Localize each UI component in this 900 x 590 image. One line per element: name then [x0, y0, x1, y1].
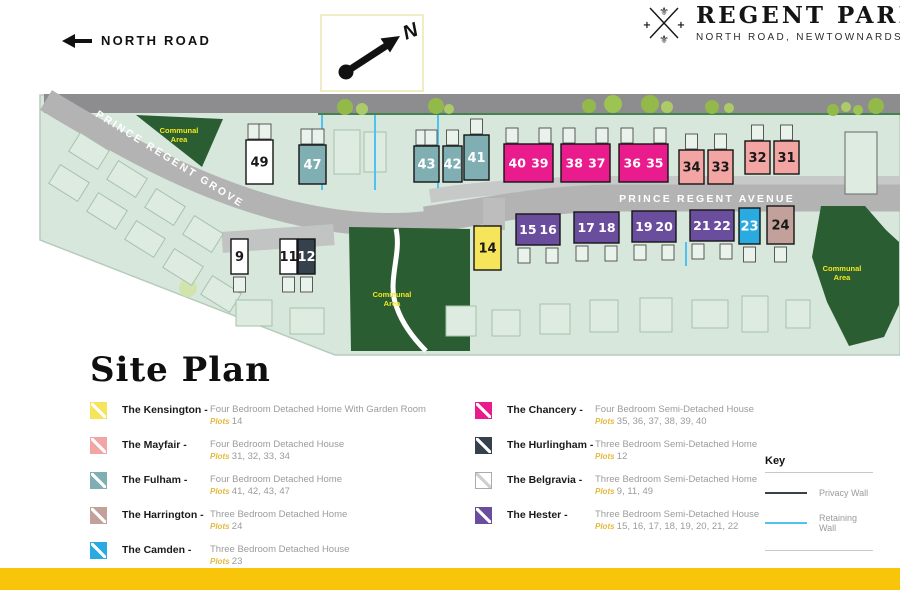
garage-outline — [621, 128, 633, 143]
legend-item-chancery: The Chancery -Four Bedroom Semi-Detached… — [475, 402, 853, 428]
key-item-label: Privacy Wall — [819, 488, 868, 498]
house-type-name: The Camden - — [122, 542, 210, 556]
plot-number: 35 — [646, 156, 663, 171]
svg-text:Area: Area — [384, 299, 402, 308]
svg-text:Area: Area — [834, 273, 852, 282]
legend-item-camden: The Camden -Three Bedroom Detached House… — [90, 542, 468, 568]
legend-item-kensington: The Kensington -Four Bedroom Detached Ho… — [90, 402, 468, 428]
garage-outline — [234, 277, 246, 292]
plots-label: Plots — [595, 417, 617, 426]
street-name-avenue: PRINCE REGENT AVENUE — [619, 193, 795, 205]
garage-outline — [539, 128, 551, 143]
plot-number: 22 — [713, 218, 730, 233]
garage-outline — [775, 247, 787, 262]
garage-outline — [301, 129, 313, 144]
garage-outline — [692, 244, 704, 259]
legend-item-fulham: The Fulham -Four Bedroom Detached HomePl… — [90, 472, 468, 498]
plot-number: 23 — [740, 220, 758, 235]
plots-label: Plots — [210, 557, 232, 566]
legend-item-harrington: The Harrington -Three Bedroom Detached H… — [90, 507, 468, 533]
plot-number: 32 — [748, 151, 766, 166]
house-type-plots: Plots 14 — [210, 416, 426, 428]
plots-label: Plots — [595, 522, 617, 531]
plots-numbers: 41, 42, 43, 47 — [232, 486, 290, 497]
page: NORTH ROAD N ⚜ ⚜ + + REGENT PARK NORTH R… — [0, 0, 900, 590]
house-type-name: The Hester - — [507, 507, 595, 521]
house-type-name: The Harrington - — [122, 507, 210, 521]
plot-number: 38 — [566, 156, 583, 171]
plots-label: Plots — [595, 487, 617, 496]
plot-number: 20 — [655, 219, 673, 234]
plots-label: Plots — [210, 522, 232, 531]
house-type-swatch — [90, 472, 107, 489]
house-type-plots: Plots 31, 32, 33, 34 — [210, 451, 344, 463]
plot-number: 12 — [297, 250, 315, 265]
garage-outline — [312, 129, 324, 144]
house-type-details: Four Bedroom Detached Home With Garden R… — [210, 402, 426, 428]
garage-outline — [576, 246, 588, 261]
house-type-details: Three Bedroom Detached HousePlots 23 — [210, 542, 349, 568]
house-type-details: Three Bedroom Semi-Detached HousePlots 1… — [595, 507, 759, 533]
plot-number: 40 — [509, 156, 527, 171]
house-type-name: The Hurlingham - — [507, 437, 595, 451]
house-type-desc: Three Bedroom Detached Home — [210, 509, 347, 521]
plot-number: 33 — [711, 161, 729, 176]
plot-number: 17 — [577, 220, 594, 235]
house-type-plots: Plots 41, 42, 43, 47 — [210, 486, 342, 498]
legend-item-mayfair: The Mayfair -Four Bedroom Detached House… — [90, 437, 468, 463]
plot-number: 21 — [693, 218, 710, 233]
driveway-plot14 — [483, 198, 505, 230]
house-type-desc: Three Bedroom Semi-Detached Home — [595, 439, 757, 451]
svg-text:Communal: Communal — [373, 290, 412, 299]
house-type-desc: Three Bedroom Semi-Detached Home — [595, 474, 757, 486]
house-type-desc: Four Bedroom Detached Home — [210, 474, 342, 486]
plots-label: Plots — [210, 452, 232, 461]
garage-outline — [259, 124, 271, 139]
house-type-plots: Plots 15, 16, 17, 18, 19, 20, 21, 22 — [595, 521, 759, 533]
plots-label: Plots — [595, 452, 617, 461]
garage-outline — [686, 134, 698, 149]
house-type-swatch — [90, 437, 107, 454]
plot-number: 11 — [279, 250, 297, 265]
plots-numbers: 31, 32, 33, 34 — [232, 451, 290, 462]
house-type-swatch — [475, 437, 492, 454]
house-type-plots: Plots 12 — [595, 451, 757, 463]
plots-numbers: 35, 36, 37, 38, 39, 40 — [617, 416, 707, 427]
house-type-swatch — [90, 542, 107, 559]
plots-numbers: 23 — [232, 556, 243, 567]
house-type-swatch — [475, 472, 492, 489]
house-type-swatch — [475, 402, 492, 419]
house-type-desc: Four Bedroom Detached House — [210, 439, 344, 451]
garage-outline — [301, 277, 313, 292]
garage-outline — [720, 244, 732, 259]
key-item-label: Retaining Wall — [819, 513, 873, 533]
garage-outline — [248, 124, 260, 139]
house-type-name: The Fulham - — [122, 472, 210, 486]
garage-outline — [744, 247, 756, 262]
key-item-retaining-wall: Retaining Wall — [765, 513, 873, 533]
plot-number: 16 — [539, 222, 557, 237]
plot-number: 47 — [303, 158, 321, 173]
svg-text:Area: Area — [171, 135, 189, 144]
plot-number: 15 — [519, 222, 536, 237]
key-line-swatch — [765, 522, 807, 524]
house-type-desc: Three Bedroom Detached House — [210, 544, 349, 556]
garage-outline — [506, 128, 518, 143]
house-type-name: The Mayfair - — [122, 437, 210, 451]
plot-number: 37 — [588, 156, 605, 171]
plot-number: 43 — [417, 158, 435, 173]
key-panel: Key Privacy WallRetaining Wall — [765, 455, 873, 551]
house-type-details: Three Bedroom Semi-Detached HomePlots 9,… — [595, 472, 757, 498]
house-type-name: The Belgravia - — [507, 472, 595, 486]
key-item-privacy-wall: Privacy Wall — [765, 488, 873, 498]
plot-number: 42 — [443, 158, 461, 173]
plots-numbers: 15, 16, 17, 18, 19, 20, 21, 22 — [617, 521, 739, 532]
house-type-desc: Four Bedroom Semi-Detached House — [595, 404, 754, 416]
page-title: Site Plan — [90, 350, 271, 390]
plot-number: 14 — [478, 242, 496, 257]
house-type-plots: Plots 35, 36, 37, 38, 39, 40 — [595, 416, 754, 428]
garage-outline — [425, 130, 437, 145]
house-type-swatch — [90, 507, 107, 524]
house-type-name: The Kensington - — [122, 402, 210, 416]
svg-text:Communal: Communal — [160, 126, 199, 135]
garage-outline — [283, 277, 295, 292]
house-type-desc: Three Bedroom Semi-Detached House — [595, 509, 759, 521]
plot-number: 36 — [624, 156, 642, 171]
garage-outline — [471, 119, 483, 134]
legend-column-left: The Kensington -Four Bedroom Detached Ho… — [90, 402, 468, 577]
svg-text:Communal: Communal — [823, 264, 862, 273]
house-type-details: Four Bedroom Detached HomePlots 41, 42, … — [210, 472, 342, 498]
house-type-name: The Chancery - — [507, 402, 595, 416]
house-type-details: Three Bedroom Semi-Detached HomePlots 12 — [595, 437, 757, 463]
house-type-plots: Plots 9, 11, 49 — [595, 486, 757, 498]
garage-outline — [447, 130, 459, 145]
site-map: PRINCE REGENT GROVE PRINCE REGENT AVENUE… — [0, 0, 900, 360]
key-line-swatch — [765, 492, 807, 494]
plots-numbers: 9, 11, 49 — [617, 486, 653, 497]
garage-outline — [752, 125, 764, 140]
plots-numbers: 12 — [617, 451, 628, 462]
house-type-details: Three Bedroom Detached HomePlots 24 — [210, 507, 347, 533]
house-type-details: Four Bedroom Detached HousePlots 31, 32,… — [210, 437, 344, 463]
plots-numbers: 14 — [232, 416, 243, 427]
garage-outline — [563, 128, 575, 143]
garage-outline — [662, 245, 674, 260]
plot-number: 19 — [635, 219, 652, 234]
house-type-details: Four Bedroom Semi-Detached HousePlots 35… — [595, 402, 754, 428]
plot-number: 34 — [682, 161, 700, 176]
plot-number: 24 — [771, 219, 789, 234]
house-type-swatch — [90, 402, 107, 419]
house-type-swatch — [475, 507, 492, 524]
house-type-plots: Plots 24 — [210, 521, 347, 533]
key-footer-rule — [765, 550, 873, 551]
key-heading: Key — [765, 455, 873, 473]
footer-bar — [0, 568, 900, 590]
garage-outline — [654, 128, 666, 143]
garage-outline — [634, 245, 646, 260]
plot-number: 39 — [531, 156, 548, 171]
garage-outline — [546, 248, 558, 263]
garage-outline — [781, 125, 793, 140]
plot-number: 49 — [250, 156, 268, 171]
garage-outline — [605, 246, 617, 261]
plot-number: 41 — [467, 151, 485, 166]
garage-outline — [715, 134, 727, 149]
plots-label: Plots — [210, 417, 232, 426]
plot-number: 31 — [777, 151, 795, 166]
plot-number: 9 — [235, 250, 244, 265]
house-type-plots: Plots 23 — [210, 556, 349, 568]
top-road — [44, 94, 900, 113]
garage-outline — [518, 248, 530, 263]
garage-outline — [596, 128, 608, 143]
plots-numbers: 24 — [232, 521, 243, 532]
plots-label: Plots — [210, 487, 232, 496]
plot-number: 18 — [598, 220, 615, 235]
house-type-desc: Four Bedroom Detached Home With Garden R… — [210, 404, 426, 416]
